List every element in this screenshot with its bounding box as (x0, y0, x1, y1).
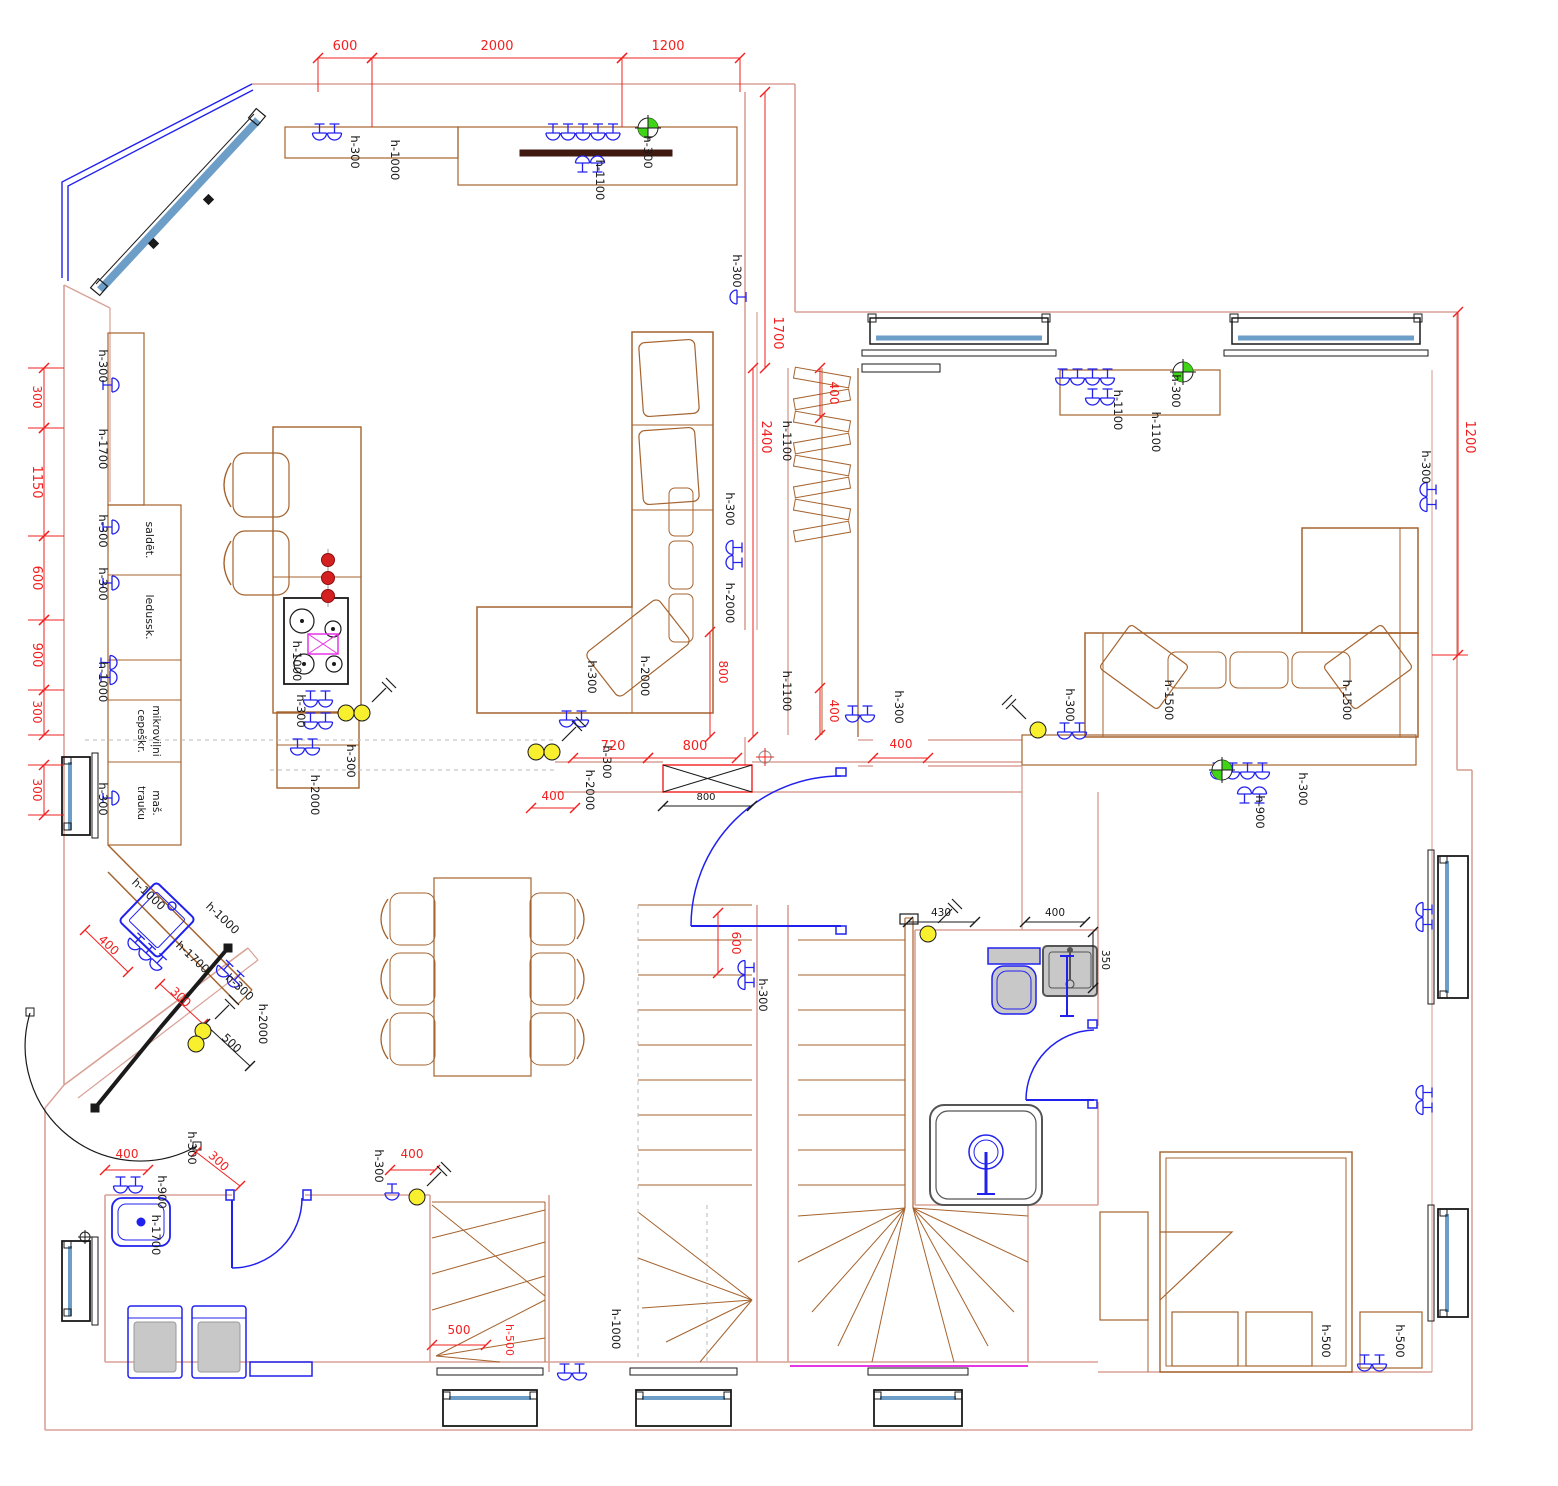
furniture (381, 899, 388, 939)
furniture (285, 127, 458, 158)
furniture (1323, 624, 1413, 710)
height-label: h-2000 (256, 1004, 270, 1045)
power-outlet-icon (1416, 903, 1432, 932)
furniture (577, 959, 584, 999)
switch-icons (188, 678, 1046, 1205)
height-label: h-2000 (583, 770, 597, 811)
furniture (669, 488, 693, 536)
fixtures (100, 120, 258, 290)
dimension-label: 400 (827, 700, 841, 723)
height-label: h-300 (723, 492, 737, 525)
height-label: h-1000 (290, 641, 304, 682)
windows (530, 1392, 537, 1399)
furniture (1166, 1158, 1346, 1366)
furniture (1246, 1312, 1312, 1366)
dimension-label: 600 (729, 932, 743, 955)
windows (1438, 856, 1468, 998)
dimension-label: 1200 (651, 39, 684, 54)
windows (443, 1392, 450, 1399)
furniture (798, 1208, 905, 1262)
pendant-light-icon (322, 590, 335, 603)
dimensions-layer (28, 53, 1468, 1350)
height-label: h-900 (1253, 795, 1267, 828)
switch-fork-icon (372, 678, 396, 702)
furniture (642, 1300, 752, 1308)
height-label: h-1100 (1149, 412, 1163, 453)
height-label: h-300 (1296, 772, 1310, 805)
furniture (108, 333, 144, 505)
furniture (432, 1205, 545, 1296)
furniture (1100, 1212, 1148, 1320)
ceiling-lamp-icon (648, 118, 658, 128)
height-label: h-1000 (96, 662, 110, 703)
height-label: h-1000 (388, 140, 402, 181)
height-label: 800 (696, 792, 715, 803)
dimension-label: h-500 (503, 1324, 516, 1356)
fixtures (1068, 948, 1073, 953)
furniture (913, 1208, 1028, 1262)
windows (1438, 1209, 1468, 1317)
furniture (585, 598, 692, 699)
fixtures (204, 195, 214, 205)
windows (868, 1368, 968, 1375)
height-label: h-300 (96, 782, 110, 815)
furniture (224, 541, 231, 585)
windows (1428, 850, 1434, 1004)
height-label: h-300 (641, 135, 655, 168)
fixtures (137, 1218, 145, 1226)
furniture (390, 1013, 435, 1065)
windows (630, 1368, 737, 1375)
power-outlet-icon (385, 1184, 399, 1200)
height-label: h-1100 (593, 160, 607, 201)
height-label: h-900 (155, 1175, 169, 1208)
height-label: 430 (931, 907, 951, 919)
fixtures (333, 663, 336, 666)
furniture (913, 1208, 1014, 1312)
furniture (1172, 1312, 1238, 1366)
furniture (913, 1208, 988, 1346)
dimension-label: 600 (333, 39, 358, 54)
fixtures (1088, 1020, 1097, 1028)
windows (874, 1390, 962, 1426)
furniture (577, 1019, 584, 1059)
furniture (390, 953, 435, 1005)
height-label: h-1700 (96, 429, 110, 470)
walls (45, 1085, 64, 1108)
ceiling-lamp-icon (1183, 362, 1193, 372)
fixtures (332, 628, 335, 631)
height-label: saldēt. (143, 521, 156, 558)
windows (955, 1392, 962, 1399)
dimension-label: 2000 (480, 39, 513, 54)
furniture (477, 332, 713, 713)
switch-fork-icon (215, 995, 239, 1019)
windows (1428, 1205, 1434, 1321)
fixtures (301, 620, 304, 623)
switch-icon (528, 744, 544, 760)
power-outlet-icon (730, 290, 746, 304)
height-label: h-1700 (149, 1215, 163, 1256)
height-label: maš. (150, 790, 162, 815)
switch-fork-icon (1002, 695, 1026, 719)
height-label: 400 (1045, 907, 1065, 919)
dimension-label: 1700 (770, 316, 785, 349)
height-label: h-300 (1419, 450, 1433, 483)
dimension-label: 500 (448, 1323, 471, 1337)
height-label: trauku (135, 786, 147, 820)
furniture (666, 1300, 752, 1342)
fixtures (836, 768, 846, 776)
windows (724, 1392, 731, 1399)
furniture (913, 1208, 954, 1362)
dimensions-tick (235, 1181, 245, 1191)
floor-plan-canvas: 6002000120017002400400800720800400400400… (0, 0, 1558, 1486)
height-label: h-1100 (780, 671, 794, 712)
height-label: h-300 (1169, 374, 1183, 407)
fixtures (95, 1028, 160, 1108)
windows (874, 1392, 881, 1399)
walls (248, 948, 258, 960)
furniture (1230, 652, 1288, 688)
windows (636, 1390, 731, 1426)
height-label: h-1500 (1162, 680, 1176, 721)
switch-icon (1030, 722, 1046, 738)
furniture (638, 1258, 752, 1300)
height-label: h-1100 (780, 421, 794, 462)
fixtures (134, 1322, 176, 1372)
dimension-label: 400 (827, 382, 841, 405)
fixtures (68, 90, 253, 281)
dimension-label: 300 (206, 1148, 232, 1174)
power-outlet-icon (291, 739, 320, 755)
fixtures (232, 1198, 302, 1268)
height-label: h-300 (344, 744, 358, 777)
dimension-label: 400 (96, 932, 122, 958)
furniture (1302, 528, 1418, 633)
height-label: cepeškr. (135, 709, 147, 753)
windows (862, 350, 1056, 356)
dimension-label: 300 (30, 701, 44, 724)
furniture (913, 1208, 1028, 1216)
furniture (700, 1300, 752, 1362)
height-label: mikroviļni (150, 705, 162, 756)
furniture (432, 1210, 545, 1238)
furniture (812, 1208, 905, 1312)
furniture (1085, 633, 1418, 737)
furniture (530, 893, 575, 945)
furniture (638, 339, 699, 417)
switch-icon (409, 1189, 425, 1205)
furniture (434, 878, 531, 1076)
furniture (432, 1242, 545, 1274)
furniture (432, 1276, 545, 1310)
furniture (436, 1356, 500, 1362)
dimension-label: 1150 (29, 465, 44, 498)
furniture (838, 1208, 905, 1346)
dimension-label: 400 (890, 737, 913, 751)
furniture (233, 531, 289, 595)
dimension-label: 2400 (758, 420, 773, 453)
power-outlet-icon (846, 706, 875, 722)
dimension-label: 400 (542, 789, 565, 803)
power-outlet-icon (114, 1177, 143, 1193)
windows (636, 1392, 643, 1399)
furniture (577, 899, 584, 939)
height-label: h-300 (348, 135, 362, 168)
furniture (108, 872, 238, 1004)
furniture (381, 959, 388, 999)
furniture (1160, 1232, 1232, 1300)
height-label: 500 (219, 1030, 245, 1055)
height-label: h-1500 (1340, 680, 1354, 721)
height-label: 350 (1099, 950, 1111, 970)
furniture (224, 463, 231, 507)
height-label: h-500 (1319, 1324, 1333, 1357)
power-outlet-icon (726, 541, 742, 570)
switch-icon (920, 926, 936, 942)
furniture (1060, 370, 1220, 415)
power-outlet-icon (1058, 723, 1087, 739)
fixtures (91, 1104, 99, 1112)
fixtures (198, 1322, 240, 1372)
walls (64, 948, 248, 1085)
dimension-label: 300 (30, 386, 44, 409)
height-label: h-300 (600, 745, 614, 778)
height-label: h-1000 (609, 1309, 623, 1350)
height-label: h-2000 (638, 656, 652, 697)
pendant-light-icon (322, 572, 335, 585)
windows (437, 1368, 543, 1375)
pendant-light-icon (322, 554, 335, 567)
power-outlet-icon (1420, 483, 1436, 512)
power-outlet-icon (558, 1364, 587, 1380)
height-label: h-1100 (1111, 390, 1125, 431)
power-outlet-icon (1416, 1086, 1432, 1115)
furniture (872, 1208, 905, 1362)
fixtures (250, 1362, 312, 1376)
fixtures (224, 944, 232, 952)
dimension-label: 600 (29, 566, 44, 591)
height-label: h-300 (96, 514, 110, 547)
height-label: ledussk. (143, 594, 156, 639)
furniture (381, 1019, 388, 1059)
height-label: h-300 (372, 1149, 386, 1182)
furniture (233, 453, 289, 517)
floor-plan-svg: 6002000120017002400400800720800400400400… (0, 0, 1558, 1486)
height-label: h-1000 (129, 875, 168, 913)
fixtures (988, 948, 1040, 964)
dimension-label: 300 (30, 779, 44, 802)
dimension-label: 400 (401, 1147, 424, 1161)
switch-icon (338, 705, 354, 721)
fixtures (992, 966, 1036, 1014)
dimension-label: 800 (716, 661, 730, 684)
height-label: h-300 (756, 978, 770, 1011)
furniture (798, 1208, 905, 1216)
windows (92, 1237, 98, 1325)
windows (443, 1390, 537, 1426)
height-label: h-2000 (723, 583, 737, 624)
furniture (530, 1013, 575, 1065)
furniture (530, 953, 575, 1005)
fixtures (836, 926, 846, 934)
switch-icon (544, 744, 560, 760)
dimension-label: 900 (29, 643, 44, 668)
height-label: h-300 (294, 694, 308, 727)
switch-icon (354, 705, 370, 721)
height-label: h-1000 (203, 899, 242, 937)
dimension-label: 300 (168, 984, 194, 1010)
fixtures-layer (25, 84, 1097, 1378)
height-label: h-300 (1063, 688, 1077, 721)
height-label: h-2000 (308, 775, 322, 816)
fixtures (1026, 1030, 1094, 1100)
fixtures (96, 114, 254, 284)
windows (1224, 350, 1428, 356)
height-label: h-300 (96, 567, 110, 600)
height-label: h-300 (730, 254, 744, 287)
height-label: h-300 (892, 690, 906, 723)
height-label: h-500 (1393, 1324, 1407, 1357)
furniture (669, 541, 693, 589)
lamp-icons (322, 115, 1236, 783)
dimension-label: 800 (683, 739, 708, 754)
fixtures (1088, 1100, 1097, 1108)
dimension-label: 1200 (1462, 420, 1477, 453)
furniture (390, 893, 435, 945)
windows (862, 364, 940, 372)
power-outlet-icon (1056, 369, 1115, 385)
furniture (638, 1212, 752, 1300)
power-outlet-icon (1086, 389, 1115, 405)
height-label: h-300 (185, 1131, 199, 1164)
fixtures (62, 84, 252, 278)
ceiling-lamp-icon (1222, 760, 1232, 770)
furniture (1360, 1312, 1422, 1368)
dimension-label: 400 (116, 1147, 139, 1161)
height-label: h-300 (223, 971, 257, 1004)
switch-icon (188, 1036, 204, 1052)
height-label: h-300 (585, 660, 599, 693)
height-label: h-300 (96, 349, 110, 382)
